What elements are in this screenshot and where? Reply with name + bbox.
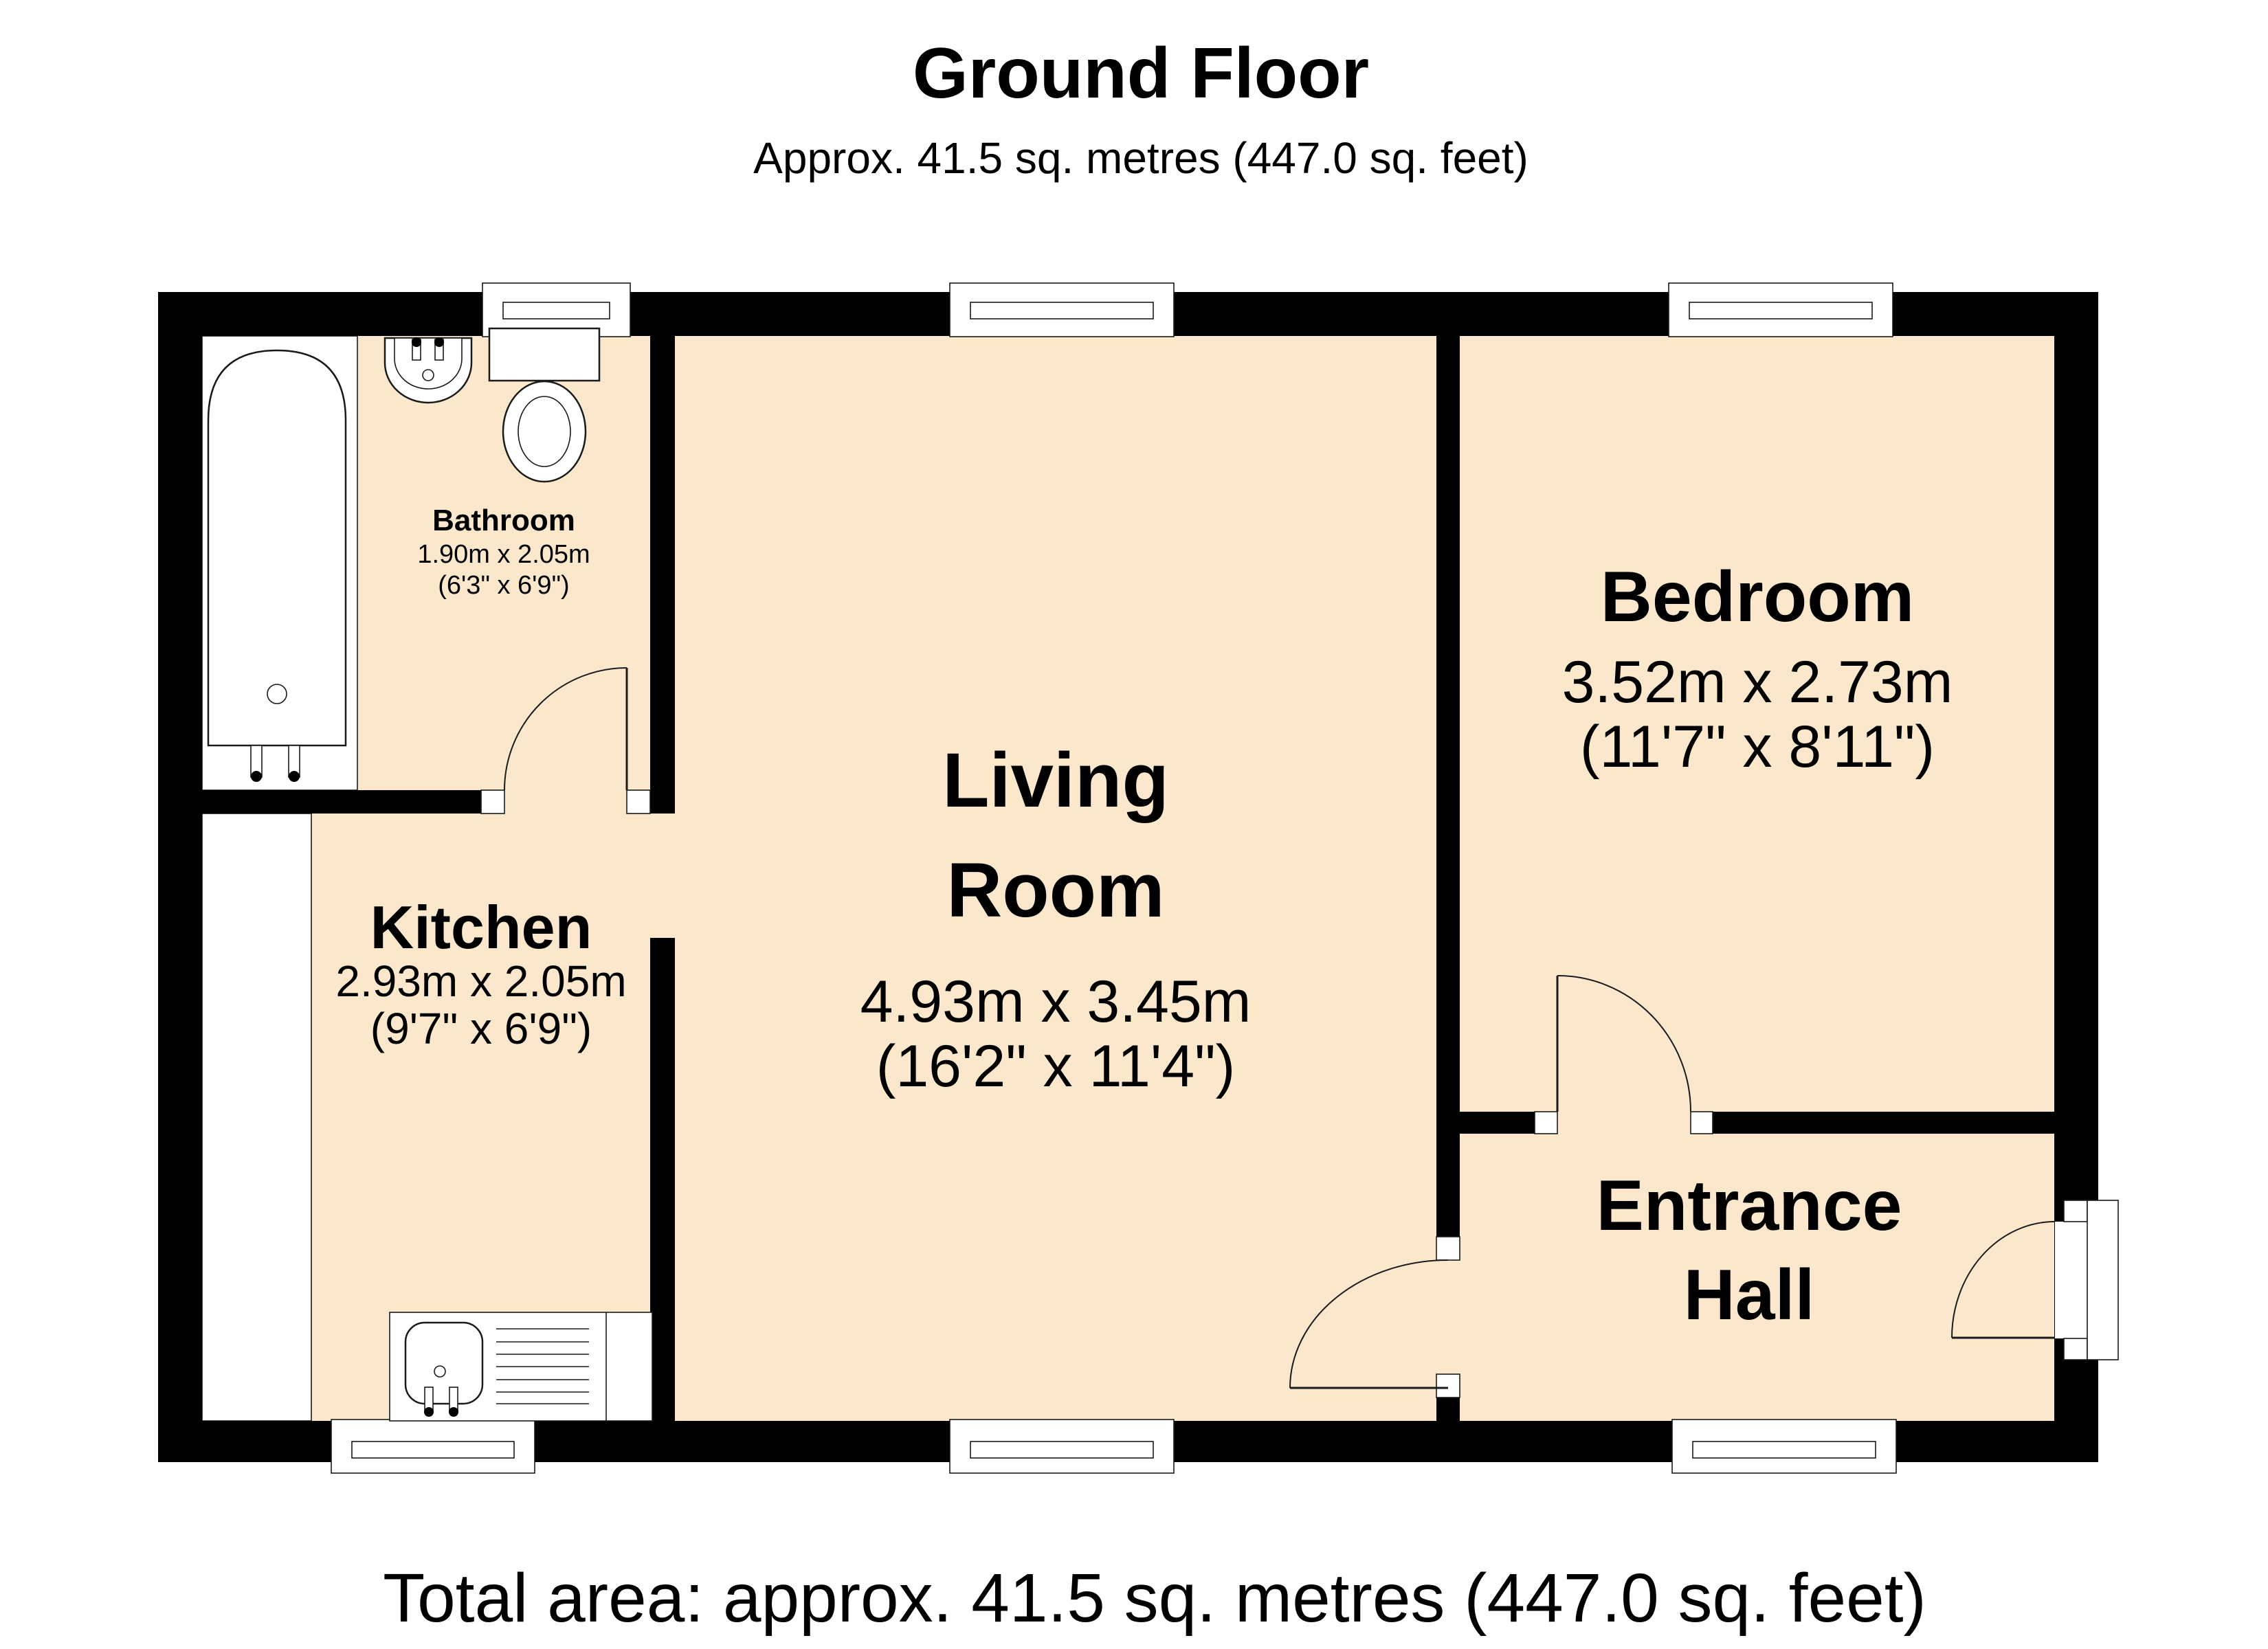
window-kitchen-bottom (331, 1420, 535, 1473)
jamb-bedroom-left (1535, 1112, 1557, 1134)
wall-bathroom-kitchen (202, 790, 481, 814)
window-living-bottom (950, 1420, 1174, 1473)
jamb-bedroom-right (1691, 1112, 1713, 1134)
floorplan-svg: Ground Floor Approx. 41.5 sq. metres (44… (0, 0, 2268, 1649)
kitchen-name: Kitchen (370, 893, 592, 961)
wall-bedroom-hall-left (1460, 1112, 1535, 1134)
kitchen-counter-strip (202, 814, 311, 1421)
kitchen-dims-metric: 2.93m x 2.05m (335, 956, 626, 1006)
wall-exterior-left (158, 292, 202, 1462)
label-bedroom: Bedroom 3.52m x 2.73m (11'7" x 8'11") (1562, 557, 1953, 780)
bedroom-dims-metric: 3.52m x 2.73m (1562, 649, 1953, 715)
hall-name-line1: Entrance (1596, 1166, 1902, 1246)
jamb-bathroom-right (627, 790, 650, 814)
page-title: Ground Floor (913, 34, 1369, 113)
label-kitchen: Kitchen 2.93m x 2.05m (9'7" x 6'9") (335, 893, 626, 1053)
jamb-bathroom-left (481, 790, 504, 814)
bathroom-name: Bathroom (432, 504, 575, 537)
window-bedroom-top (1669, 283, 1893, 337)
wall-bathroom-living (650, 336, 675, 814)
hall-name-line2: Hall (1684, 1255, 1815, 1335)
total-area-text: Total area: approx. 41.5 sq. metres (447… (383, 1560, 1926, 1637)
living-dims-metric: 4.93m x 3.45m (860, 969, 1252, 1035)
bathroom-dims-metric: 1.90m x 2.05m (417, 540, 590, 569)
living-name-line2: Room (946, 847, 1164, 933)
floorplan-page: Ground Floor Approx. 41.5 sq. metres (44… (0, 0, 2268, 1649)
wall-living-bedroom-hall (1436, 336, 1460, 1237)
kitchen-dims-imperial: (9'7" x 6'9") (370, 1004, 592, 1053)
bathtub-icon (208, 350, 346, 782)
front-door-recess (2087, 1200, 2118, 1360)
window-living-top (950, 283, 1174, 337)
jamb-front-door-top (2064, 1200, 2087, 1222)
window-hall-bottom (1672, 1420, 1896, 1473)
kitchen-sink-icon (390, 1312, 652, 1421)
wall-kitchen-living (650, 938, 675, 1421)
label-bathroom: Bathroom 1.90m x 2.05m (6'3" x 6'9") (417, 504, 590, 600)
bathroom-dims-imperial: (6'3" x 6'9") (438, 571, 569, 600)
wall-bedroom-hall-right (1713, 1112, 2055, 1134)
jamb-hall-top (1436, 1237, 1460, 1260)
page-subtitle: Approx. 41.5 sq. metres (447.0 sq. feet) (753, 133, 1528, 183)
jamb-front-door-bottom (2064, 1338, 2087, 1360)
jamb-hall-bottom (1436, 1374, 1460, 1398)
living-dims-imperial: (16'2" x 11'4") (876, 1033, 1236, 1099)
living-name-line1: Living (942, 737, 1169, 823)
wall-hall-stub (1436, 1398, 1460, 1421)
bedroom-name: Bedroom (1601, 557, 1914, 637)
bedroom-dims-imperial: (11'7" x 8'11") (1580, 714, 1935, 780)
